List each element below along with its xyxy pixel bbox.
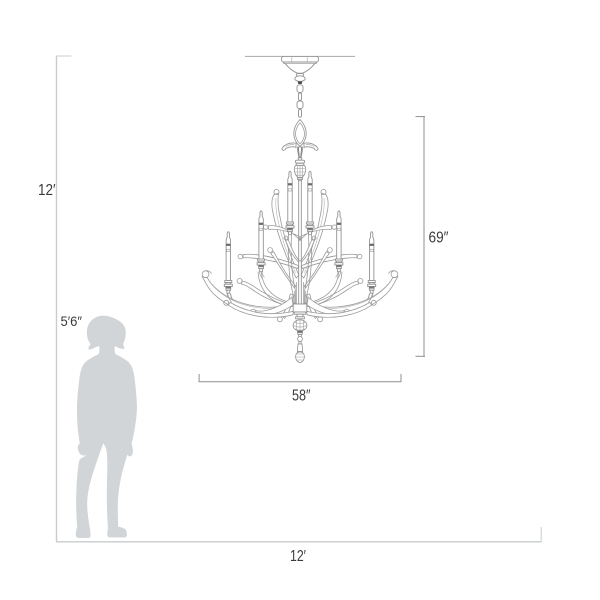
svg-text:5′6″: 5′6″ bbox=[61, 313, 83, 329]
svg-text:58″: 58″ bbox=[292, 388, 311, 405]
svg-text:12′: 12′ bbox=[38, 182, 56, 199]
svg-text:12′: 12′ bbox=[290, 548, 306, 565]
svg-text:69″: 69″ bbox=[429, 230, 449, 247]
